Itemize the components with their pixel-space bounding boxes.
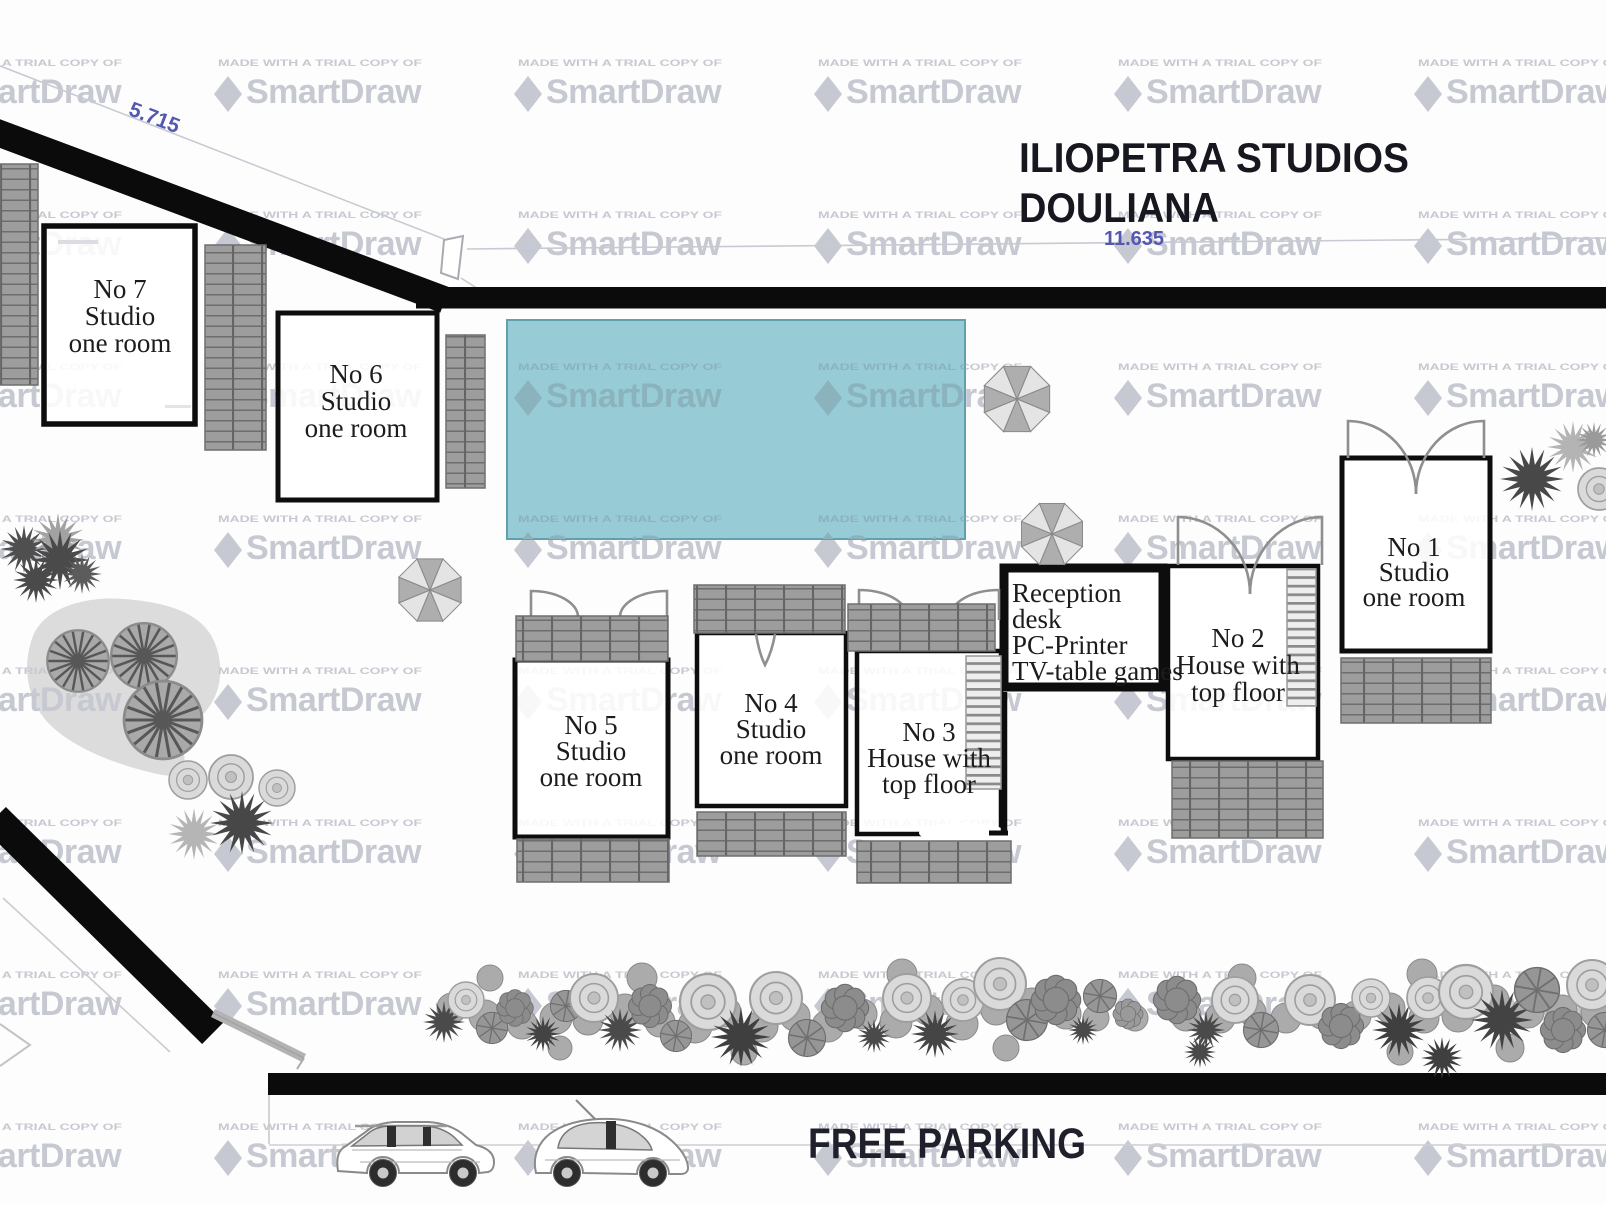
svg-text:FREE PARKING: FREE PARKING [808,1120,1086,1168]
svg-text:one room: one room [305,413,408,443]
svg-text:TV-table games: TV-table games [1012,656,1183,686]
svg-text:House with: House with [1176,650,1300,680]
svg-text:one room: one room [540,762,643,792]
svg-text:No 6: No 6 [329,359,382,389]
svg-text:top floor: top floor [1191,677,1285,707]
svg-text:top floor: top floor [882,769,976,799]
svg-text:one room: one room [720,740,823,770]
svg-text:No 2: No 2 [1211,623,1264,653]
svg-text:ILIOPETRA STUDIOS: ILIOPETRA STUDIOS [1019,134,1409,181]
svg-text:DOULIANA: DOULIANA [1019,184,1219,231]
svg-text:Studio: Studio [85,301,156,331]
svg-text:No 7: No 7 [93,274,146,304]
svg-text:11.635: 11.635 [1104,228,1164,250]
svg-text:one room: one room [69,328,172,358]
svg-text:one room: one room [1363,582,1466,612]
svg-text:Studio: Studio [321,386,392,416]
